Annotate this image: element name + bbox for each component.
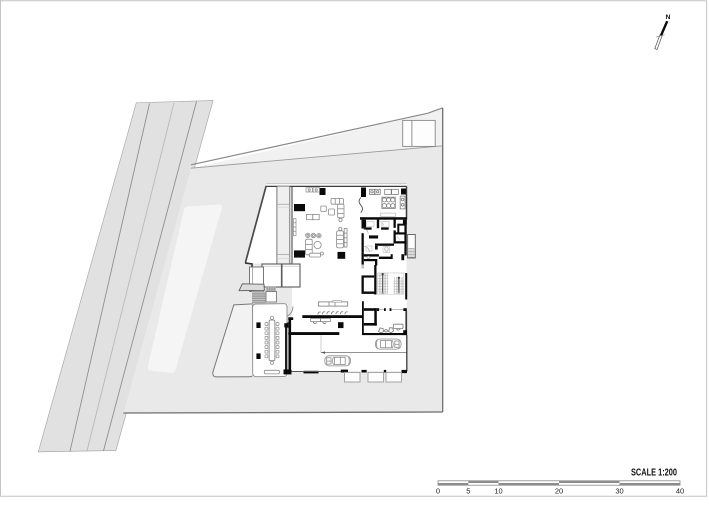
- svg-text:SCALE 1:200: SCALE 1:200: [631, 467, 677, 479]
- svg-text:10: 10: [494, 487, 502, 496]
- svg-text:40: 40: [676, 487, 684, 496]
- svg-text:20: 20: [555, 487, 563, 496]
- svg-text:30: 30: [615, 487, 623, 496]
- svg-text:5: 5: [466, 487, 470, 496]
- svg-text:N: N: [666, 14, 671, 21]
- svg-text:0: 0: [436, 487, 440, 496]
